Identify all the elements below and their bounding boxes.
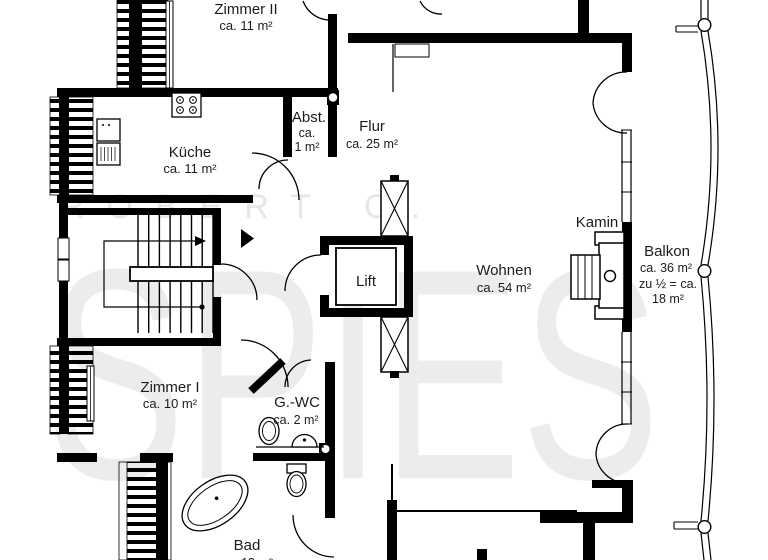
wall-segment [57, 453, 97, 462]
room-label-abst: Abst. [292, 109, 326, 126]
railing-post-icon [698, 265, 711, 278]
room-area-zimmer1: ca. 10 m² [143, 396, 198, 411]
room-area-abst-2: 1 m² [295, 140, 320, 154]
stove-icon [172, 93, 201, 117]
room-label-gwc: G.-WC [274, 394, 320, 411]
room-label-bad: Bad [234, 537, 261, 554]
room-label-flur: Flur [359, 118, 385, 135]
wall-segment [57, 338, 220, 346]
wall-segment [583, 521, 595, 560]
shaft-icon [381, 175, 408, 236]
railing-post-icon [698, 521, 711, 534]
facade-hatch-band-top [117, 0, 168, 88]
wall-segment [592, 480, 623, 488]
wall-segment [477, 549, 487, 560]
door-swing [259, 160, 288, 189]
shaft-icon [381, 317, 408, 378]
wall-segment [67, 208, 216, 215]
door-swing [303, 1, 332, 20]
room-area-abst-1: ca. [299, 126, 316, 140]
wall-segment [622, 43, 632, 72]
column-abst [327, 90, 339, 105]
window [58, 260, 69, 281]
floor-plan-drawing: ROBERT C. SPIES [0, 0, 768, 560]
room-label-zimmer2: Zimmer II [214, 1, 277, 18]
room-area-gwc: ca. 2 m² [273, 413, 318, 427]
room-area-kueche: ca. 11 m² [163, 161, 217, 176]
wall-segment [578, 0, 589, 33]
window [58, 238, 69, 259]
room-area-wohnen: ca. 54 m² [477, 280, 532, 295]
toilet-icon [287, 464, 306, 497]
stair-landing [130, 267, 213, 281]
kitchen-sink-icon [97, 119, 120, 165]
wall-segment [57, 195, 253, 203]
room-area-bad: ca. 13 m² [221, 556, 273, 560]
room-area-zimmer2: ca. 11 m² [219, 18, 273, 33]
door-swing [593, 72, 627, 103]
room-area-balkon-3: 18 m² [652, 292, 684, 306]
wall-segment [622, 480, 633, 515]
facade-hatch-band-bottom [119, 462, 171, 560]
wall-segment [328, 103, 337, 157]
room-label-kueche: Küche [169, 144, 212, 161]
room-label-lift: Lift [356, 273, 377, 290]
room-label-wohnen: Wohnen [476, 262, 532, 279]
room-label-balkon: Balkon [644, 243, 690, 260]
room-label-zimmer1: Zimmer I [140, 379, 199, 396]
door-swing [420, 1, 442, 14]
floor-plan: ROBERT C. SPIES [0, 0, 768, 560]
wall-segment [283, 97, 292, 157]
railing-post-icon [698, 19, 711, 32]
wall-segment [140, 453, 173, 462]
facade-hatch-band-kitchen [50, 97, 93, 195]
wall-segment [213, 297, 221, 346]
wall-segment [253, 453, 329, 461]
room-area-flur: ca. 25 m² [346, 137, 398, 151]
wall-segment [213, 208, 221, 265]
room-label-kamin: Kamin [576, 214, 619, 231]
wall-segment [325, 362, 335, 518]
room-area-balkon-2: zu ½ = ca. [639, 277, 697, 291]
door-swing [593, 103, 627, 133]
column-gwc [319, 443, 332, 455]
wall-segment [588, 33, 632, 43]
wall-segment [328, 14, 337, 92]
wall-segment [348, 33, 588, 43]
room-area-balkon-1: ca. 36 m² [640, 261, 692, 275]
